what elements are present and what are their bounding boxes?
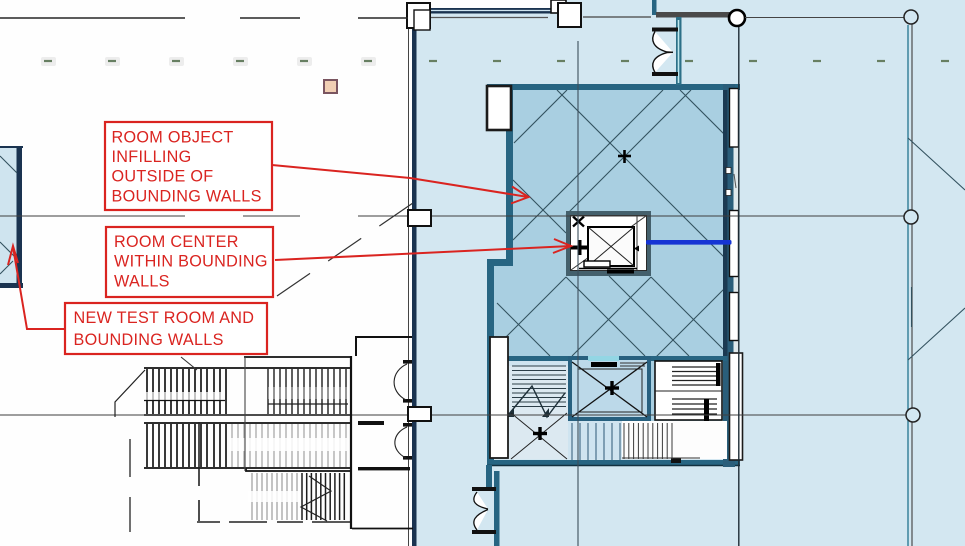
svg-text:OUTSIDE OF: OUTSIDE OF bbox=[112, 168, 214, 186]
svg-text:WITHIN BOUNDING: WITHIN BOUNDING bbox=[114, 253, 268, 271]
svg-text:BOUNDING WALLS: BOUNDING WALLS bbox=[74, 331, 224, 349]
svg-text:INFILLING: INFILLING bbox=[112, 148, 192, 166]
svg-text:BOUNDING WALLS: BOUNDING WALLS bbox=[112, 187, 262, 205]
svg-text:WALLS: WALLS bbox=[114, 272, 170, 290]
svg-text:ROOM OBJECT: ROOM OBJECT bbox=[112, 128, 234, 146]
svg-text:ROOM CENTER: ROOM CENTER bbox=[114, 233, 239, 251]
svg-text:NEW TEST ROOM AND: NEW TEST ROOM AND bbox=[74, 309, 255, 327]
